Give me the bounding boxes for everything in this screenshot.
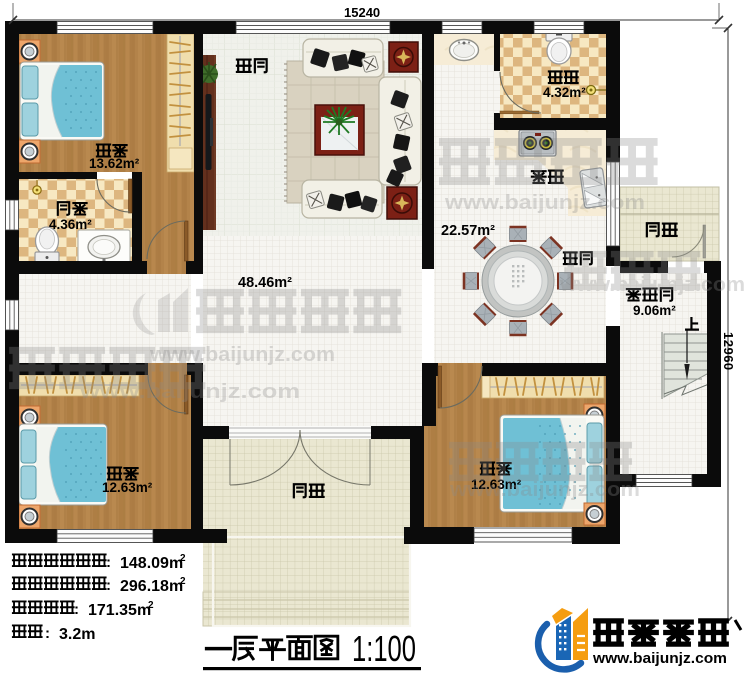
svg-text:48.46m²: 48.46m² xyxy=(238,275,292,291)
svg-text:2: 2 xyxy=(148,600,154,611)
svg-text:3.2m: 3.2m xyxy=(59,626,95,643)
svg-text:www.baijunjz.com: www.baijunjz.com xyxy=(449,479,640,501)
svg-text:12960: 12960 xyxy=(721,332,736,371)
svg-text:4.32m²: 4.32m² xyxy=(543,85,586,100)
svg-text:www.baijunjz.com: www.baijunjz.com xyxy=(592,650,727,667)
svg-text:1:100: 1:100 xyxy=(352,628,416,669)
svg-text:171.35m: 171.35m xyxy=(88,602,151,619)
svg-text::: : xyxy=(106,554,111,571)
svg-text:13.62m²: 13.62m² xyxy=(89,156,140,171)
svg-text:2: 2 xyxy=(180,576,186,587)
svg-text::: : xyxy=(45,625,50,642)
svg-text:9.06m²: 9.06m² xyxy=(633,303,676,318)
svg-text:296.18m: 296.18m xyxy=(120,578,183,595)
svg-text:12.63m²: 12.63m² xyxy=(102,480,153,495)
svg-text:4.36m²: 4.36m² xyxy=(49,217,92,232)
svg-text:www.baijunjz.com: www.baijunjz.com xyxy=(444,192,645,214)
svg-text:22.57m²: 22.57m² xyxy=(441,223,495,239)
svg-text:15240: 15240 xyxy=(344,5,380,20)
svg-text:www.baijunjz.com: www.baijunjz.com xyxy=(79,381,300,403)
svg-text::: : xyxy=(74,601,79,618)
svg-text:www.baijunjz.com: www.baijunjz.com xyxy=(559,274,745,296)
svg-text:148.09m: 148.09m xyxy=(120,555,183,572)
svg-text::: : xyxy=(106,577,111,594)
svg-text:2: 2 xyxy=(180,553,186,564)
